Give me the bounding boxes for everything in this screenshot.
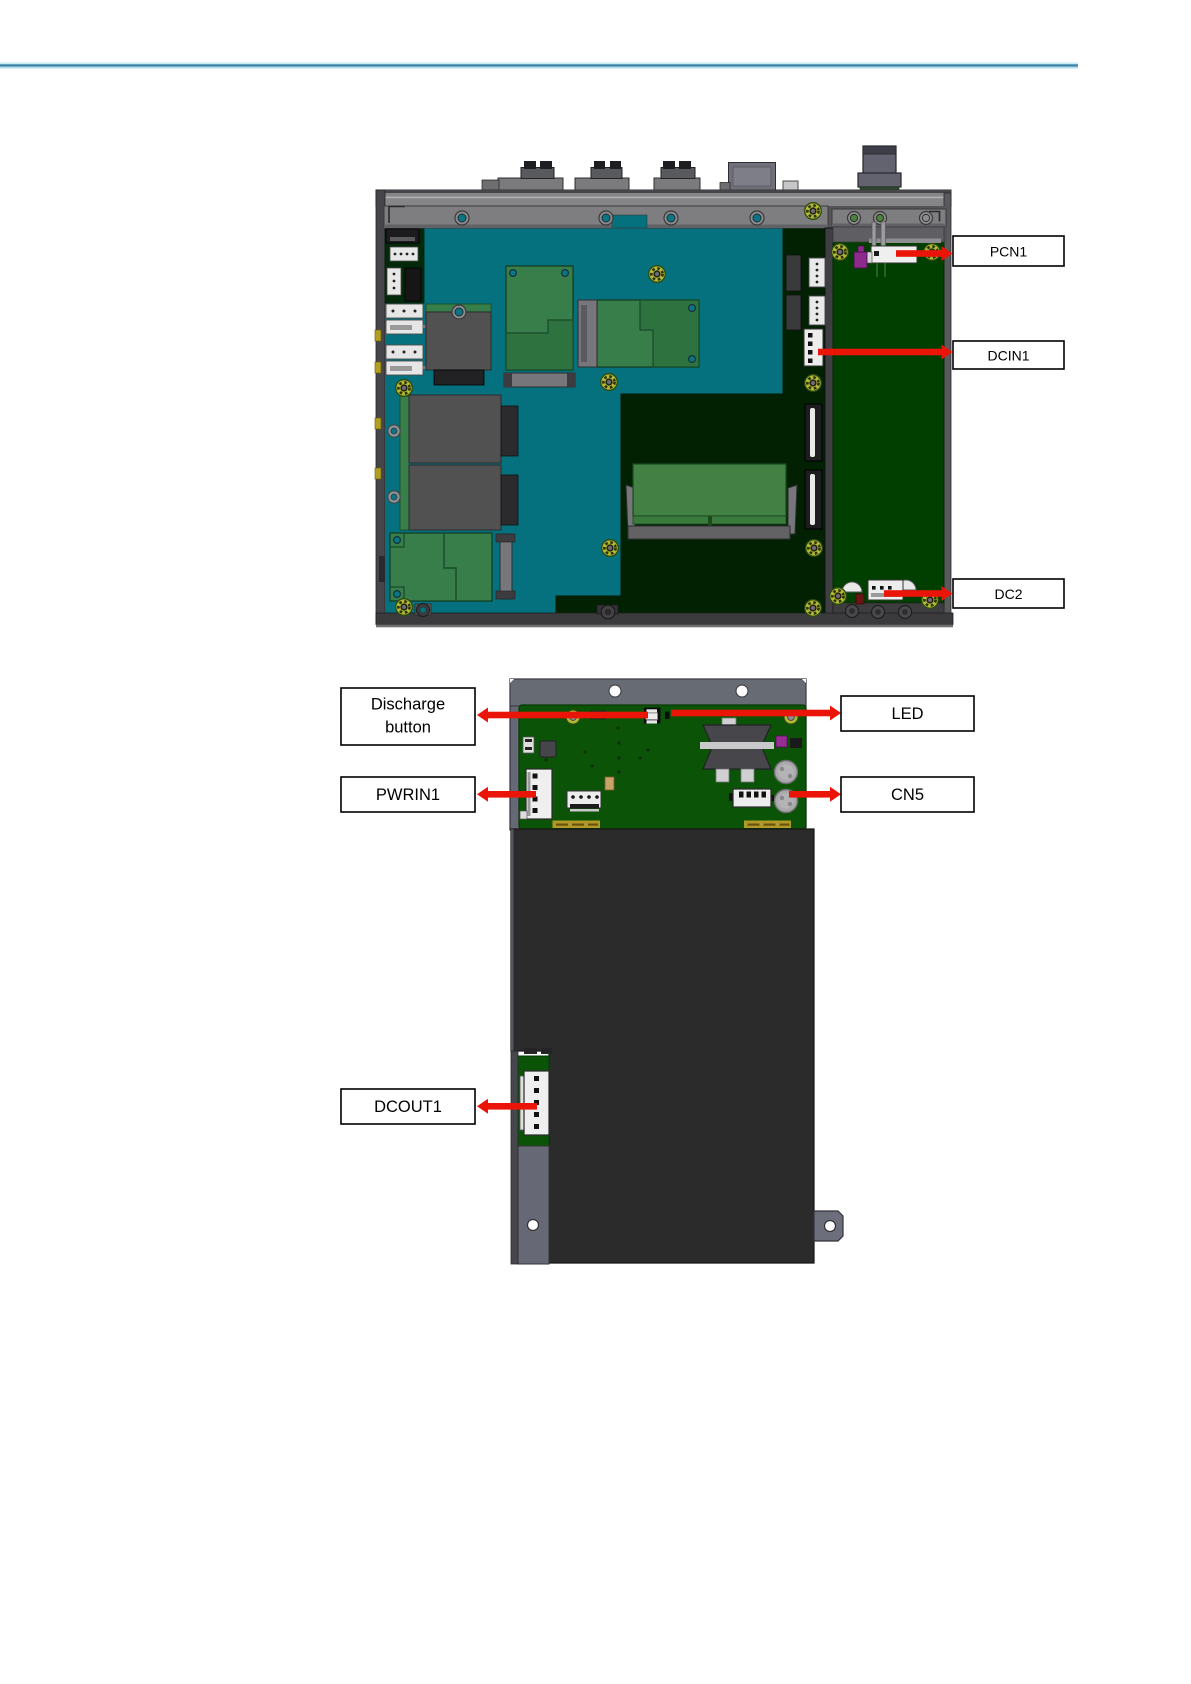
svg-text:PWRIN1: PWRIN1 bbox=[376, 786, 440, 804]
svg-text:PCN1: PCN1 bbox=[990, 244, 1028, 260]
svg-text:CN5: CN5 bbox=[891, 786, 924, 804]
svg-text:LED: LED bbox=[891, 705, 923, 723]
svg-text:Discharge: Discharge bbox=[371, 696, 445, 714]
svg-text:DCOUT1: DCOUT1 bbox=[374, 1098, 442, 1116]
svg-text:button: button bbox=[385, 719, 431, 737]
svg-text:DCIN1: DCIN1 bbox=[987, 348, 1029, 364]
svg-text:DC2: DC2 bbox=[994, 586, 1022, 602]
